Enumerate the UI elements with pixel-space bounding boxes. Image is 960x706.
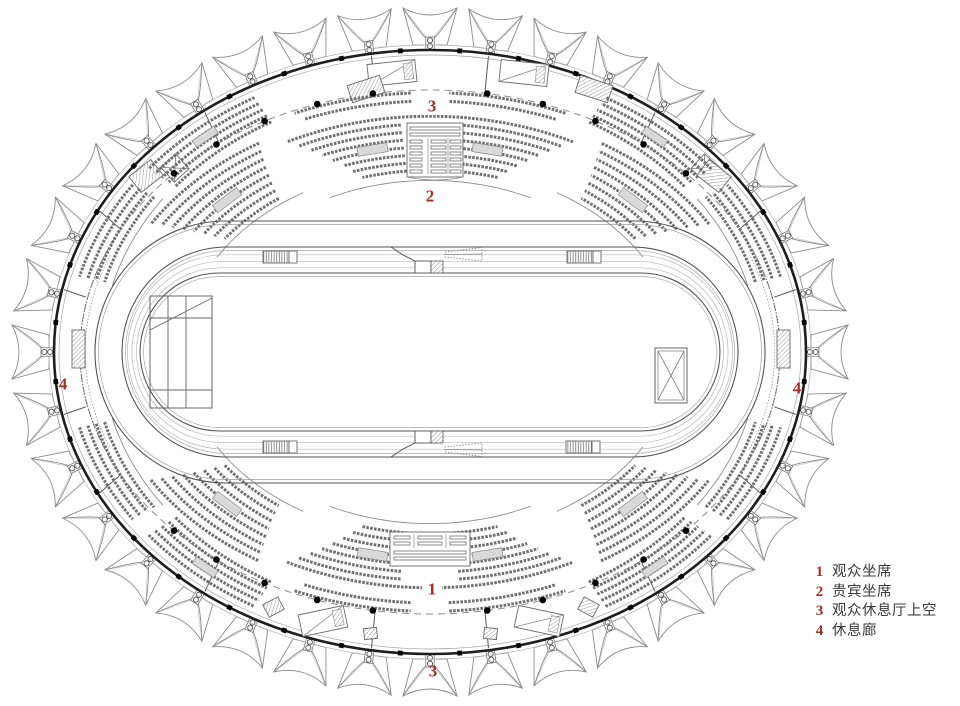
bowl-front-rail bbox=[112, 418, 163, 505]
tent-canopy bbox=[105, 99, 173, 166]
legend-num-4: 4 bbox=[814, 622, 825, 642]
seat-row bbox=[225, 198, 279, 238]
gallery-rail-ticks bbox=[85, 255, 110, 448]
tent-canopy bbox=[156, 578, 224, 642]
stair-block bbox=[363, 627, 377, 639]
area-marker-3: 3 bbox=[429, 662, 438, 681]
column-dot bbox=[398, 651, 403, 656]
vip-seat-bar bbox=[431, 158, 446, 161]
column-dot bbox=[640, 141, 647, 148]
stair-block bbox=[263, 597, 285, 617]
column-dot bbox=[171, 527, 178, 534]
vip-seat-bar bbox=[450, 146, 461, 149]
gallery-partition bbox=[485, 56, 488, 92]
column-dot bbox=[53, 320, 58, 325]
column-dot bbox=[683, 170, 690, 177]
vip-seat-bar bbox=[431, 146, 446, 149]
service-room bbox=[514, 605, 564, 636]
vip-seat-bar bbox=[450, 152, 461, 155]
vomitory-slab bbox=[618, 491, 647, 516]
stair-block bbox=[567, 251, 601, 263]
tent-canopy bbox=[213, 36, 279, 95]
gallery-partition bbox=[774, 407, 796, 414]
tent-canopy bbox=[731, 143, 797, 211]
track-line bbox=[125, 251, 734, 454]
column-dot bbox=[171, 170, 178, 177]
area-markers: 321344 bbox=[59, 97, 802, 681]
legend-item-3: 3 观众休息厅上空 bbox=[814, 602, 937, 622]
seat-row bbox=[720, 189, 772, 279]
vip-seat-bar bbox=[418, 542, 442, 545]
stair-block bbox=[483, 627, 497, 639]
column-dot bbox=[516, 643, 522, 649]
seat-row bbox=[353, 163, 406, 171]
legend-label-3: 观众休息厅上空 bbox=[832, 602, 937, 622]
bowl-front-rail bbox=[330, 506, 531, 523]
tent-canopy bbox=[31, 440, 92, 507]
vip-seat-bar bbox=[394, 536, 410, 539]
legend-item-4: 4 休息廊 bbox=[814, 622, 937, 642]
front-rails bbox=[112, 180, 748, 523]
column-dot bbox=[370, 607, 377, 614]
track-line bbox=[144, 277, 717, 428]
stair-block bbox=[263, 441, 297, 453]
column-dot bbox=[457, 48, 462, 53]
service-room bbox=[499, 60, 549, 87]
column-dot bbox=[314, 101, 321, 108]
area-marker-2: 2 bbox=[426, 187, 435, 206]
vip-block-top bbox=[407, 123, 463, 180]
track-line bbox=[122, 247, 738, 457]
vip-block-bottom bbox=[390, 532, 470, 566]
column-dot bbox=[573, 627, 579, 633]
vip-seat-bar bbox=[410, 170, 422, 173]
vip-seat-bar bbox=[450, 164, 461, 167]
legend-label-1: 观众坐席 bbox=[832, 563, 892, 583]
column-dot bbox=[802, 320, 807, 325]
gallery-partition bbox=[64, 407, 86, 414]
track-line bbox=[127, 255, 732, 449]
gallery-partition bbox=[774, 290, 796, 297]
tent-canopy bbox=[636, 63, 704, 127]
vip-seat-bar bbox=[410, 158, 422, 161]
legend-label-4: 休息廊 bbox=[832, 622, 877, 642]
column-dot bbox=[683, 527, 690, 534]
area-marker-4: 4 bbox=[793, 379, 802, 398]
vip-seat-bar bbox=[410, 127, 460, 130]
vomitory-slab bbox=[212, 188, 241, 213]
column-dot bbox=[281, 71, 287, 77]
legend-num-1: 1 bbox=[814, 563, 825, 583]
column-dot bbox=[261, 118, 268, 125]
vip-seat-bar bbox=[410, 152, 422, 155]
tent-canopy bbox=[768, 197, 829, 264]
column-dot bbox=[802, 379, 807, 384]
legend-num-3: 3 bbox=[814, 602, 825, 622]
tent-canopy bbox=[338, 647, 397, 695]
column-dot bbox=[640, 556, 647, 563]
column-dot bbox=[540, 597, 547, 604]
vip-seat-bar bbox=[450, 542, 466, 545]
vomitory-slab bbox=[618, 188, 647, 213]
column-dot bbox=[592, 118, 599, 125]
seat-row bbox=[597, 477, 688, 545]
column-dot bbox=[398, 48, 403, 53]
tent-canopy bbox=[581, 609, 647, 668]
stage-structure bbox=[150, 296, 212, 408]
vip-seat-bar bbox=[410, 140, 422, 143]
vip-seat-bar bbox=[418, 536, 442, 539]
tent-canopy bbox=[14, 258, 67, 320]
tent-canopy bbox=[687, 539, 755, 606]
tent-canopy bbox=[12, 325, 54, 379]
tent-canopy bbox=[274, 632, 337, 686]
stadium-floor-plan: 321344 1 观众坐席 2 贵宾坐席 3 观众休息厅上空 4 休息廊 bbox=[0, 0, 960, 706]
stair-block bbox=[578, 597, 600, 617]
track-line bbox=[136, 268, 723, 436]
vip-seat-bar bbox=[431, 140, 446, 143]
area-marker-4: 4 bbox=[59, 375, 68, 394]
bowl-front-rail bbox=[697, 418, 748, 505]
tent-canopy bbox=[403, 8, 457, 50]
column-dot bbox=[213, 556, 220, 563]
tent-canopy bbox=[338, 9, 397, 57]
tent-canopy bbox=[636, 578, 704, 642]
column-dot bbox=[281, 627, 287, 633]
vip-seat-bar bbox=[431, 152, 446, 155]
vip-seat-bar bbox=[450, 536, 466, 539]
seat-row bbox=[599, 478, 698, 552]
vip-seat-bar bbox=[410, 133, 460, 136]
legend-label-2: 贵宾坐席 bbox=[832, 583, 892, 603]
vip-seat-bar bbox=[410, 146, 422, 149]
seat-row bbox=[363, 171, 407, 177]
stair-block bbox=[347, 75, 385, 103]
column-dot bbox=[370, 90, 377, 97]
tent-canopy bbox=[156, 63, 224, 127]
column-dot bbox=[573, 71, 579, 77]
seat-row bbox=[88, 189, 140, 279]
track-line bbox=[95, 221, 765, 483]
track-line bbox=[140, 273, 720, 431]
tent-canopy bbox=[768, 440, 829, 507]
stair-block bbox=[263, 251, 297, 263]
column-dot bbox=[592, 580, 599, 587]
track-line bbox=[132, 261, 728, 442]
vip-seat-bar bbox=[431, 164, 446, 167]
vip-seat-bar bbox=[450, 170, 461, 173]
tent-canopy bbox=[63, 492, 129, 560]
gallery-partition bbox=[64, 290, 86, 297]
seat-row bbox=[581, 465, 635, 505]
tent-canopy bbox=[793, 258, 846, 320]
seat-row bbox=[96, 193, 147, 280]
legend-item-1: 1 观众坐席 bbox=[814, 563, 937, 583]
bowl-front-rail bbox=[112, 199, 163, 286]
column-dot bbox=[339, 643, 345, 649]
vomitory-slab bbox=[212, 491, 241, 516]
gallery-rail-ticks bbox=[750, 255, 775, 448]
track-ovals bbox=[95, 221, 765, 483]
service-room bbox=[298, 605, 348, 636]
vip-seat-bar bbox=[450, 158, 461, 161]
column-dot bbox=[339, 56, 345, 62]
column-dot bbox=[213, 141, 220, 148]
column-dot bbox=[261, 580, 268, 587]
legend: 1 观众坐席 2 贵宾坐席 3 观众休息厅上空 4 休息廊 bbox=[814, 563, 937, 642]
vip-seat-bar bbox=[410, 164, 422, 167]
tent-canopy bbox=[463, 647, 522, 695]
infield-ramp bbox=[391, 247, 482, 273]
seat-row bbox=[88, 426, 140, 516]
infield bbox=[150, 247, 687, 457]
vip-seat-bar bbox=[450, 140, 461, 143]
tent-canopy bbox=[463, 9, 522, 57]
stair-block bbox=[566, 441, 600, 453]
bowl-front-rail bbox=[697, 199, 748, 286]
infield-ramp bbox=[391, 431, 482, 457]
tent-canopy bbox=[523, 632, 586, 686]
area-marker-1: 1 bbox=[428, 580, 437, 599]
seat-row bbox=[720, 426, 772, 516]
tent-canopy bbox=[213, 609, 279, 668]
elevator-box bbox=[655, 348, 687, 403]
column-dot bbox=[53, 379, 58, 384]
vip-seat-bar bbox=[394, 551, 466, 554]
tent-canopy bbox=[274, 18, 337, 72]
column-dot bbox=[540, 101, 547, 108]
column-dot bbox=[484, 607, 491, 614]
column-dot bbox=[484, 90, 491, 97]
column-dot bbox=[516, 56, 522, 62]
legend-item-2: 2 贵宾坐席 bbox=[814, 583, 937, 603]
vip-seat-bar bbox=[394, 542, 410, 545]
vip-seat-bar bbox=[431, 170, 446, 173]
column-dot bbox=[457, 651, 462, 656]
legend-num-2: 2 bbox=[814, 583, 825, 603]
vip-seat-bar bbox=[394, 557, 466, 560]
area-marker-3: 3 bbox=[428, 97, 437, 116]
stair-block bbox=[777, 330, 790, 368]
tent-canopy bbox=[807, 325, 849, 379]
column-dot bbox=[314, 597, 321, 604]
stair-block bbox=[72, 330, 85, 368]
tent-canopy bbox=[31, 197, 92, 264]
